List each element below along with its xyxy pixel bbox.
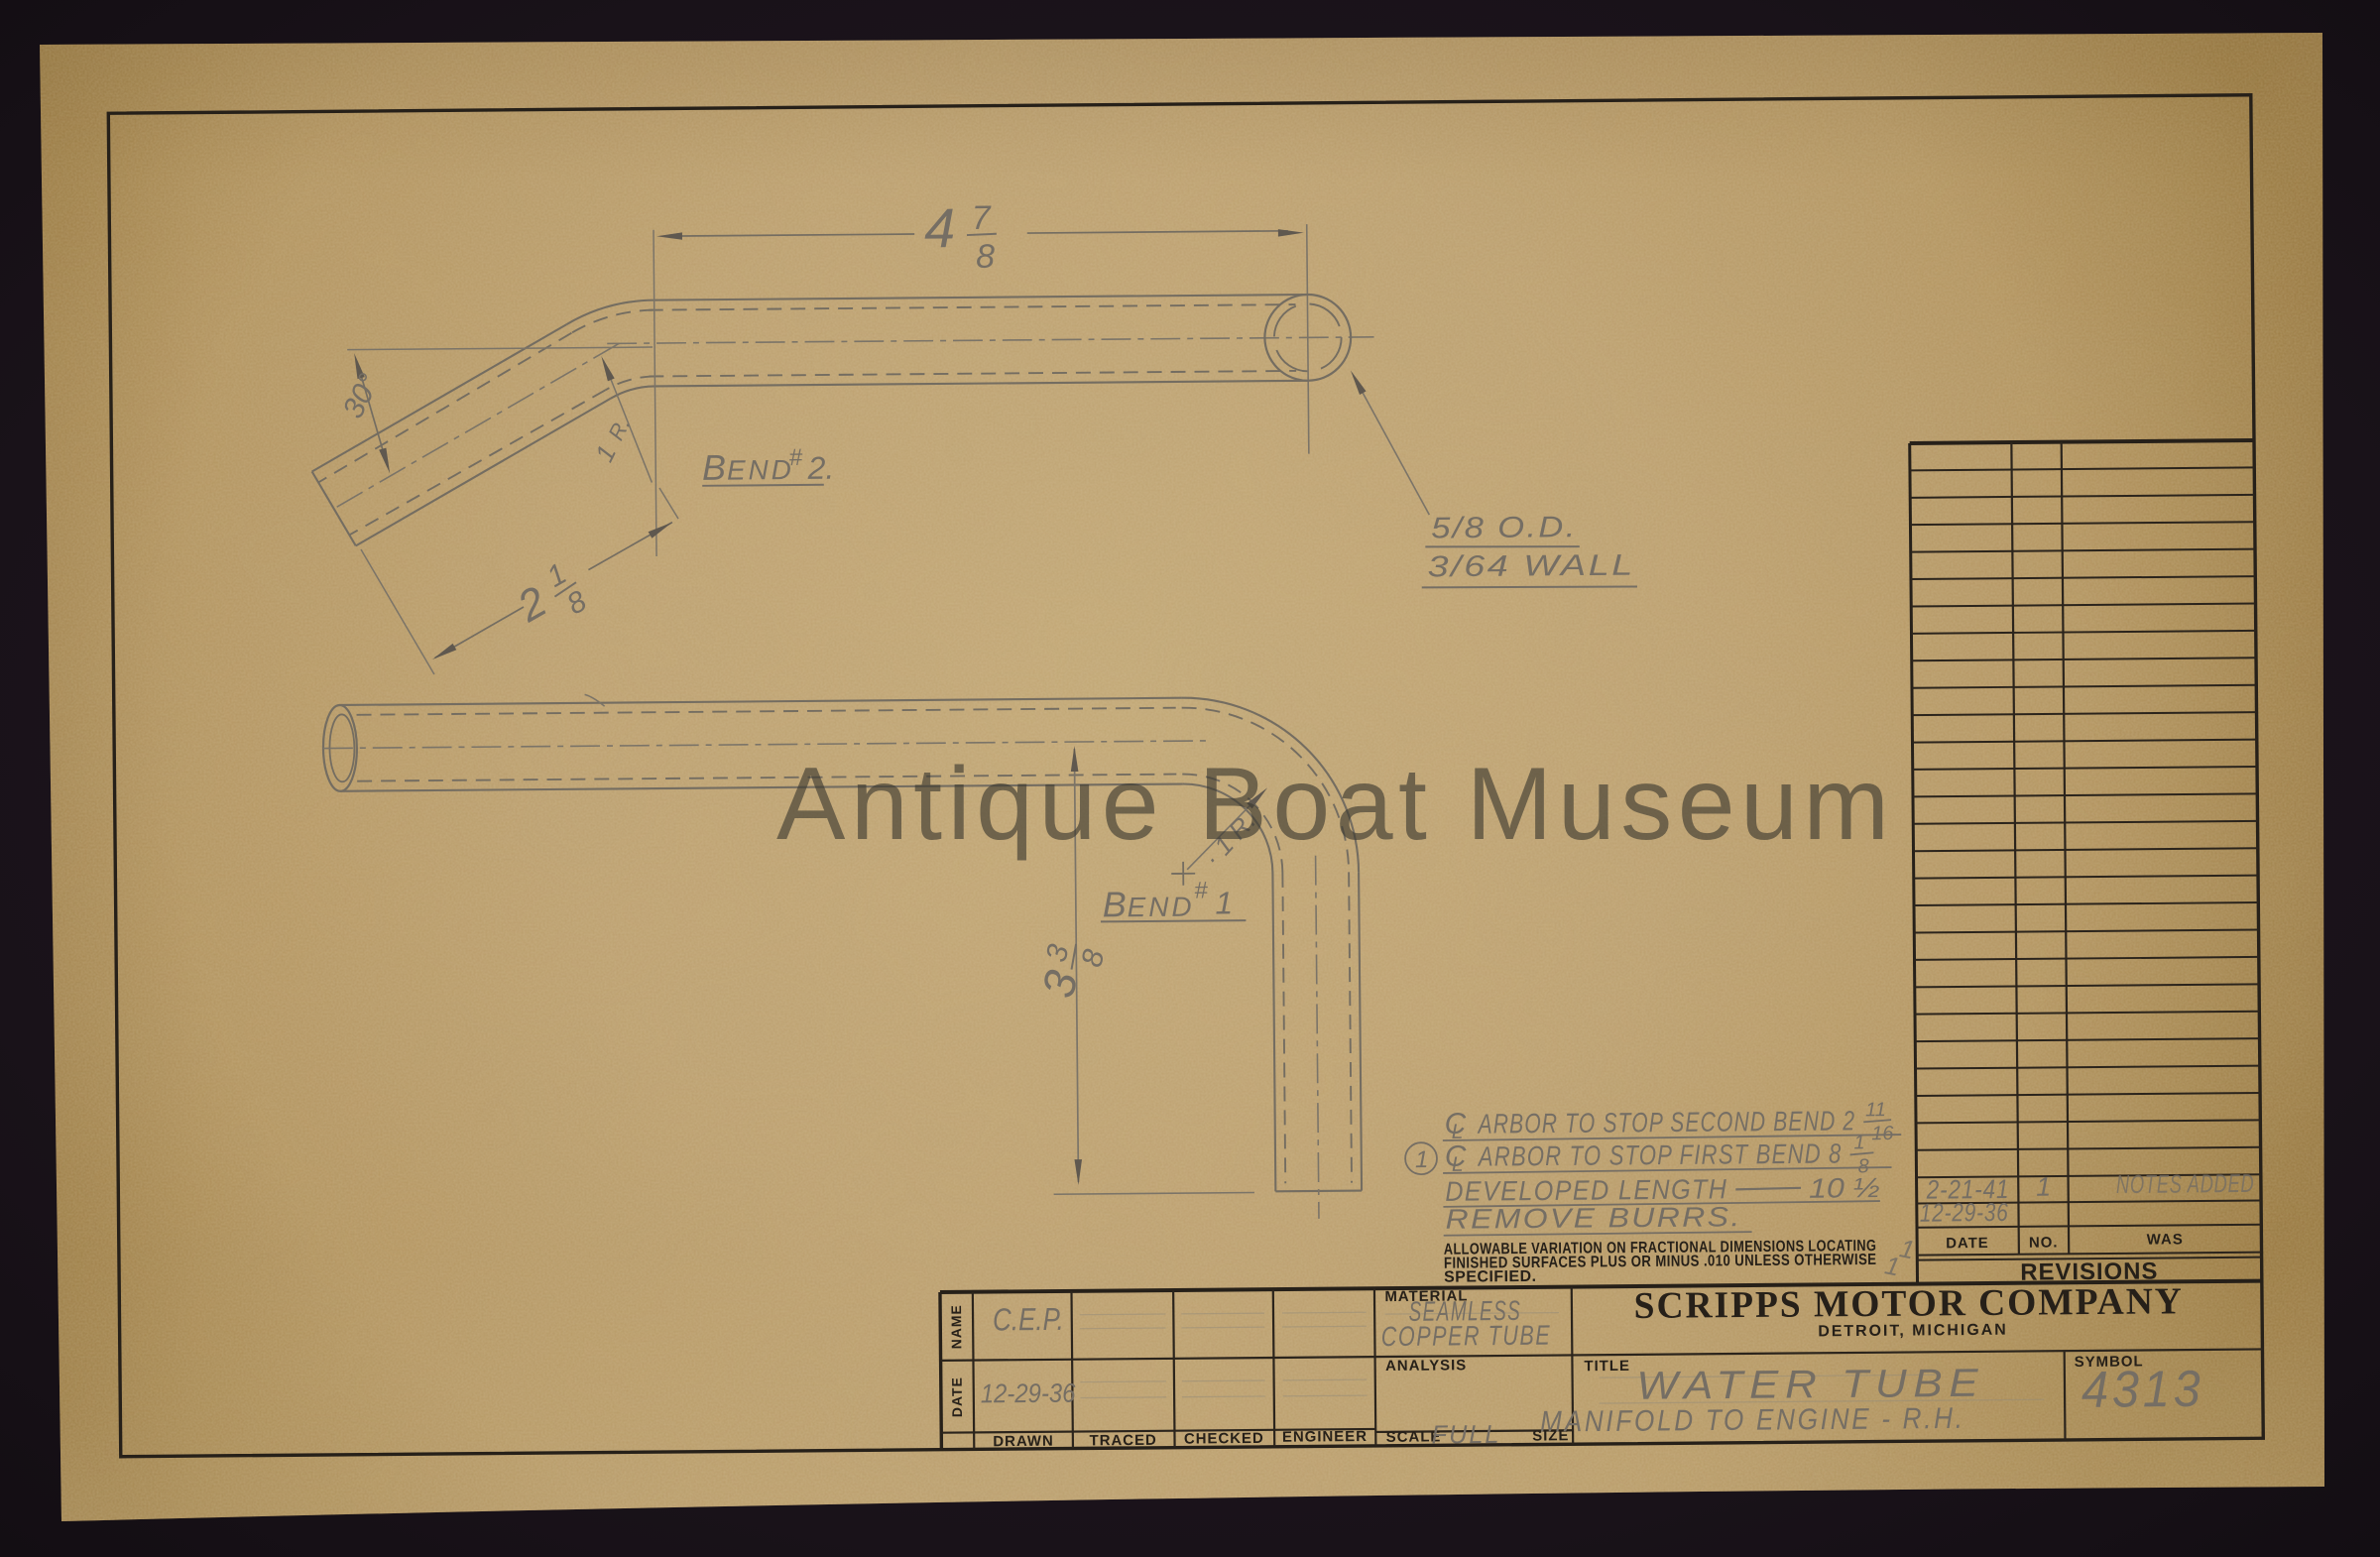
- svg-text:4: 4: [924, 196, 956, 259]
- svg-text:10 ½: 10 ½: [1809, 1172, 1880, 1204]
- svg-text:B: B: [1103, 885, 1127, 924]
- svg-text:B: B: [702, 448, 726, 488]
- svg-text:SCRIPPS MOTOR COMPANY: SCRIPPS MOTOR COMPANY: [1634, 1280, 2184, 1327]
- svg-text:2.: 2.: [807, 450, 835, 486]
- svg-text:1: 1: [2036, 1172, 2051, 1202]
- svg-text:3/64 WALL: 3/64 WALL: [1427, 549, 1635, 584]
- svg-text:DETROIT, MICHIGAN: DETROIT, MICHIGAN: [1818, 1322, 2008, 1341]
- svg-text:DRAWN: DRAWN: [993, 1433, 1054, 1451]
- svg-text:C.E.P.: C.E.P.: [993, 1301, 1064, 1338]
- svg-text:REMOVE BURRS.: REMOVE BURRS.: [1445, 1201, 1741, 1235]
- svg-text:4313: 4313: [2082, 1360, 2204, 1418]
- svg-text:ANALYSIS: ANALYSIS: [1385, 1357, 1467, 1375]
- svg-text:CHECKED: CHECKED: [1184, 1430, 1264, 1448]
- svg-text:7: 7: [972, 199, 992, 237]
- svg-text:ENGINEER: ENGINEER: [1282, 1428, 1368, 1446]
- svg-text:1: 1: [1415, 1146, 1429, 1173]
- svg-text:8: 8: [976, 238, 995, 276]
- svg-text:11: 11: [1865, 1099, 1886, 1121]
- svg-text:ARBOR TO STOP FIRST BEND 8: ARBOR TO STOP FIRST BEND 8: [1477, 1138, 1843, 1171]
- svg-text:16: 16: [1871, 1123, 1894, 1144]
- svg-text:SPECIFIED.: SPECIFIED.: [1444, 1268, 1537, 1286]
- svg-text:DATE: DATE: [949, 1377, 965, 1417]
- svg-text:TRACED: TRACED: [1090, 1432, 1157, 1450]
- svg-text:ARBOR TO STOP SECOND BEND 2: ARBOR TO STOP SECOND BEND 2: [1477, 1105, 1855, 1138]
- svg-text:END: END: [727, 454, 794, 486]
- svg-text:NO.: NO.: [2029, 1234, 2059, 1251]
- svg-text:FULL: FULL: [1431, 1421, 1500, 1450]
- svg-text:NAME: NAME: [948, 1304, 964, 1349]
- svg-text:NOTES ADDED: NOTES ADDED: [2116, 1170, 2255, 1199]
- svg-text:COPPER TUBE: COPPER TUBE: [1381, 1320, 1552, 1352]
- svg-text:END: END: [1128, 892, 1195, 923]
- svg-text:DATE: DATE: [1946, 1235, 1989, 1252]
- svg-text:#: #: [1194, 878, 1208, 904]
- svg-text:TITLE: TITLE: [1584, 1358, 1630, 1375]
- svg-text:MANIFOLD TO ENGINE - R.H.: MANIFOLD TO ENGINE - R.H.: [1540, 1402, 1965, 1439]
- svg-text:12-29-36: 12-29-36: [981, 1378, 1076, 1409]
- svg-text:12-29-36: 12-29-36: [1920, 1199, 2009, 1228]
- svg-text:1: 1: [1853, 1132, 1864, 1153]
- svg-text:#: #: [789, 444, 803, 471]
- svg-text:WATER TUBE: WATER TUBE: [1636, 1362, 1984, 1408]
- svg-text:1: 1: [1215, 885, 1233, 920]
- svg-text:WAS: WAS: [2147, 1231, 2184, 1248]
- svg-text:5/8 O.D.: 5/8 O.D.: [1431, 511, 1578, 544]
